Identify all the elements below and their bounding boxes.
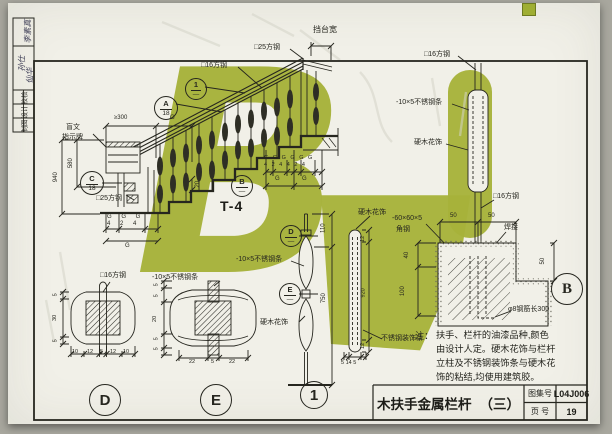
detail-e-label: -10×5不锈钢条	[152, 274, 198, 281]
detail-mark-1: 1 —	[185, 78, 207, 100]
note-line-4: 饰的粘结,均使用建筑胶。	[436, 370, 588, 384]
scanned-atlas-page: B	[0, 0, 612, 434]
dim-g-left: G	[125, 243, 130, 249]
stamp-signature-1: 李素真	[23, 20, 34, 44]
page-no-label: 页 号	[524, 403, 556, 420]
atlas-no-label: 图集号	[524, 385, 556, 402]
mark-e-top: E	[284, 285, 295, 296]
note-tag: 注：	[415, 328, 433, 342]
detail-b-dim-40: 40	[404, 252, 410, 259]
detail-b-dim-50a: 50	[450, 213, 457, 219]
mark-d-top: D	[285, 227, 296, 238]
detail-mark-c18: C 18	[80, 171, 104, 195]
detail-b-weld: 焊接	[504, 224, 518, 231]
detail-1-hardwood-label-2: 硬木花饰	[358, 209, 386, 216]
detail-e-dimv-5c: 5	[155, 337, 161, 340]
detail-title-e-letter: E	[211, 392, 221, 409]
detail-title-d-letter: D	[100, 392, 111, 409]
sheet-title: 木扶手金属栏杆	[377, 393, 472, 413]
detail-b-sq16-top: □16方钢	[424, 51, 450, 58]
detail-e-dimv-5b: 5	[155, 294, 161, 297]
detail-1-dim-12b: 12	[361, 343, 367, 349]
detail-mark-a18: A 18	[154, 96, 178, 120]
detail-b-angle-word: 角钢	[396, 226, 410, 233]
mark-b-top: B	[236, 177, 247, 188]
detail-e-dimv-5a: 5	[155, 283, 161, 286]
mark-e-bottom: —	[287, 296, 294, 304]
detail-title-1-number: 1	[310, 387, 318, 404]
detail-b-steel-strip: -10×5不锈钢条	[396, 99, 442, 106]
page-no-value: 19	[556, 403, 587, 420]
stamp-label-design: 设计	[19, 106, 29, 119]
dim-580: 580	[68, 158, 74, 168]
detail-title-1: 1	[300, 381, 328, 409]
detail-1-dim-920: 920	[362, 288, 368, 297]
detail-d-dim-5: 5	[100, 350, 103, 356]
label-landing-width: 挡台宽	[313, 26, 337, 34]
dim-g-group-right-bot: 4 2 4 4 2 4	[264, 163, 307, 169]
detail-1-hardwood-label: 硬木花饰	[260, 319, 288, 326]
detail-b-dim-50c: 50	[540, 258, 546, 265]
dim-20: 20	[195, 181, 201, 188]
sheet-title-number: （三）	[480, 393, 521, 413]
detail-b-rebar-label: φ8钢筋长300	[508, 306, 549, 313]
detail-1-dim-12a: 12	[361, 236, 367, 242]
detail-d-dim-10b: 10	[123, 350, 129, 356]
detail-d-dimv-5a: 5	[54, 293, 60, 296]
detail-e-dim-22a: 22	[189, 360, 195, 366]
note-line-2: 由设计人定。硬木花饰与栏杆	[436, 342, 588, 356]
stamp-label-draft: 制图	[19, 120, 29, 133]
detail-d-dim-10a: 10	[72, 350, 78, 356]
note-block: 扶手、栏杆的油漆品种,颜色 由设计人定。硬木花饰与栏杆 立柱及不锈钢装饰条与硬木…	[436, 328, 588, 384]
detail-1-dim-base: 5 14 5	[341, 361, 356, 367]
note-line-1: 扶手、栏杆的油漆品种,颜色	[436, 328, 588, 342]
detail-mark-e: E —	[279, 283, 301, 305]
label-16-square-steel: □16方钢	[201, 62, 227, 69]
detail-1-dim-750: 750	[321, 293, 327, 303]
detail-e-dimv-20: 20	[153, 316, 159, 322]
mark-a-bottom: 18	[162, 110, 169, 118]
detail-d-dim-12a: 12	[87, 350, 93, 356]
stamp-label-check: 校核	[19, 92, 29, 105]
dim-940: 940	[53, 172, 59, 182]
detail-mark-b: B —	[231, 175, 253, 197]
detail-b-sq16-low: □16方钢	[493, 193, 519, 200]
label-25-square-steel-top: □25方钢	[254, 44, 280, 51]
dim-g-right-1: G	[275, 176, 280, 182]
detail-d-dimv-5b: 5	[54, 339, 60, 342]
detail-b-angle-size: -60×60×5	[392, 215, 422, 222]
sheet-title-cell: 木扶手金属栏杆 （三）	[373, 385, 524, 420]
mark-1-bottom: —	[193, 91, 200, 99]
detail-mark-d: D —	[280, 225, 302, 247]
mark-b-bottom: —	[239, 188, 246, 196]
detail-title-b-letter: B	[562, 281, 572, 298]
label-braille-sign-1: 盲文	[66, 124, 80, 131]
mark-c-bottom: 18	[88, 185, 95, 193]
mark-1-top: 1	[191, 80, 201, 91]
detail-1-steel-strip-label: -10×5不锈钢条	[236, 256, 282, 263]
detail-b-dim-100: 100	[400, 286, 406, 296]
atlas-no-value: L04J006	[556, 385, 587, 402]
detail-1-dim-110: 110	[321, 223, 327, 233]
detail-d-dim-12b: 12	[110, 350, 116, 356]
detail-d-label: □16方钢	[100, 272, 126, 279]
dim-g-right-2: G	[302, 176, 307, 182]
dim-ge300: ≥300	[114, 115, 127, 121]
detail-e-dim-5: 5	[211, 360, 214, 366]
dim-g-group-left-bot: 4 2 4	[107, 221, 140, 227]
detail-title-b: B	[551, 273, 583, 305]
note-line-3: 立柱及不锈钢装饰条与硬木花	[436, 356, 588, 370]
detail-e-dim-22b: 22	[229, 360, 235, 366]
detail-b-dim-50b: 50	[488, 213, 495, 219]
label-braille-sign-2: 指示牌	[62, 134, 83, 141]
mark-d-bottom: —	[288, 238, 295, 246]
stamp-signature-3: 仙华	[25, 68, 36, 84]
detail-d-dimv-30: 30	[53, 315, 59, 321]
dim-g-group-left-top: G G G	[107, 214, 144, 220]
detail-b-hardwood: 硬木花饰	[414, 139, 442, 146]
dim-g-group-right-top: G G G G G G	[264, 156, 314, 162]
detail-title-e: E	[200, 384, 232, 416]
mark-c-top: C	[86, 174, 97, 185]
label-stair-type-t4: T-4	[220, 199, 243, 214]
label-25-square-steel-low: □25方钢	[96, 195, 122, 202]
mark-a-top: A	[160, 99, 171, 110]
detail-title-d: D	[89, 384, 121, 416]
detail-e-dimv-5d: 5	[155, 347, 161, 350]
